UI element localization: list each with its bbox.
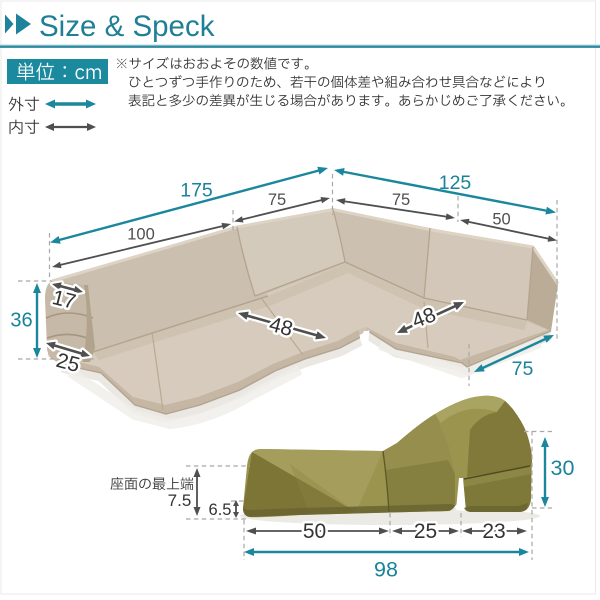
svg-text:98: 98 [374, 558, 398, 582]
svg-text:30: 30 [551, 456, 575, 480]
svg-text:75: 75 [512, 358, 534, 380]
svg-text:75: 75 [392, 191, 410, 209]
svg-text:50: 50 [303, 520, 326, 543]
svg-text:23: 23 [482, 520, 505, 543]
svg-text:100: 100 [127, 226, 155, 244]
svg-text:7.5: 7.5 [168, 491, 192, 510]
svg-text:25: 25 [414, 520, 437, 543]
svg-text:36: 36 [10, 310, 32, 332]
svg-text:50: 50 [492, 211, 510, 229]
svg-text:Size & Speck: Size & Speck [39, 10, 215, 43]
svg-text:75: 75 [268, 191, 286, 209]
svg-text:6.5: 6.5 [209, 501, 232, 519]
svg-text:125: 125 [439, 172, 472, 194]
svg-text:175: 175 [180, 180, 213, 202]
